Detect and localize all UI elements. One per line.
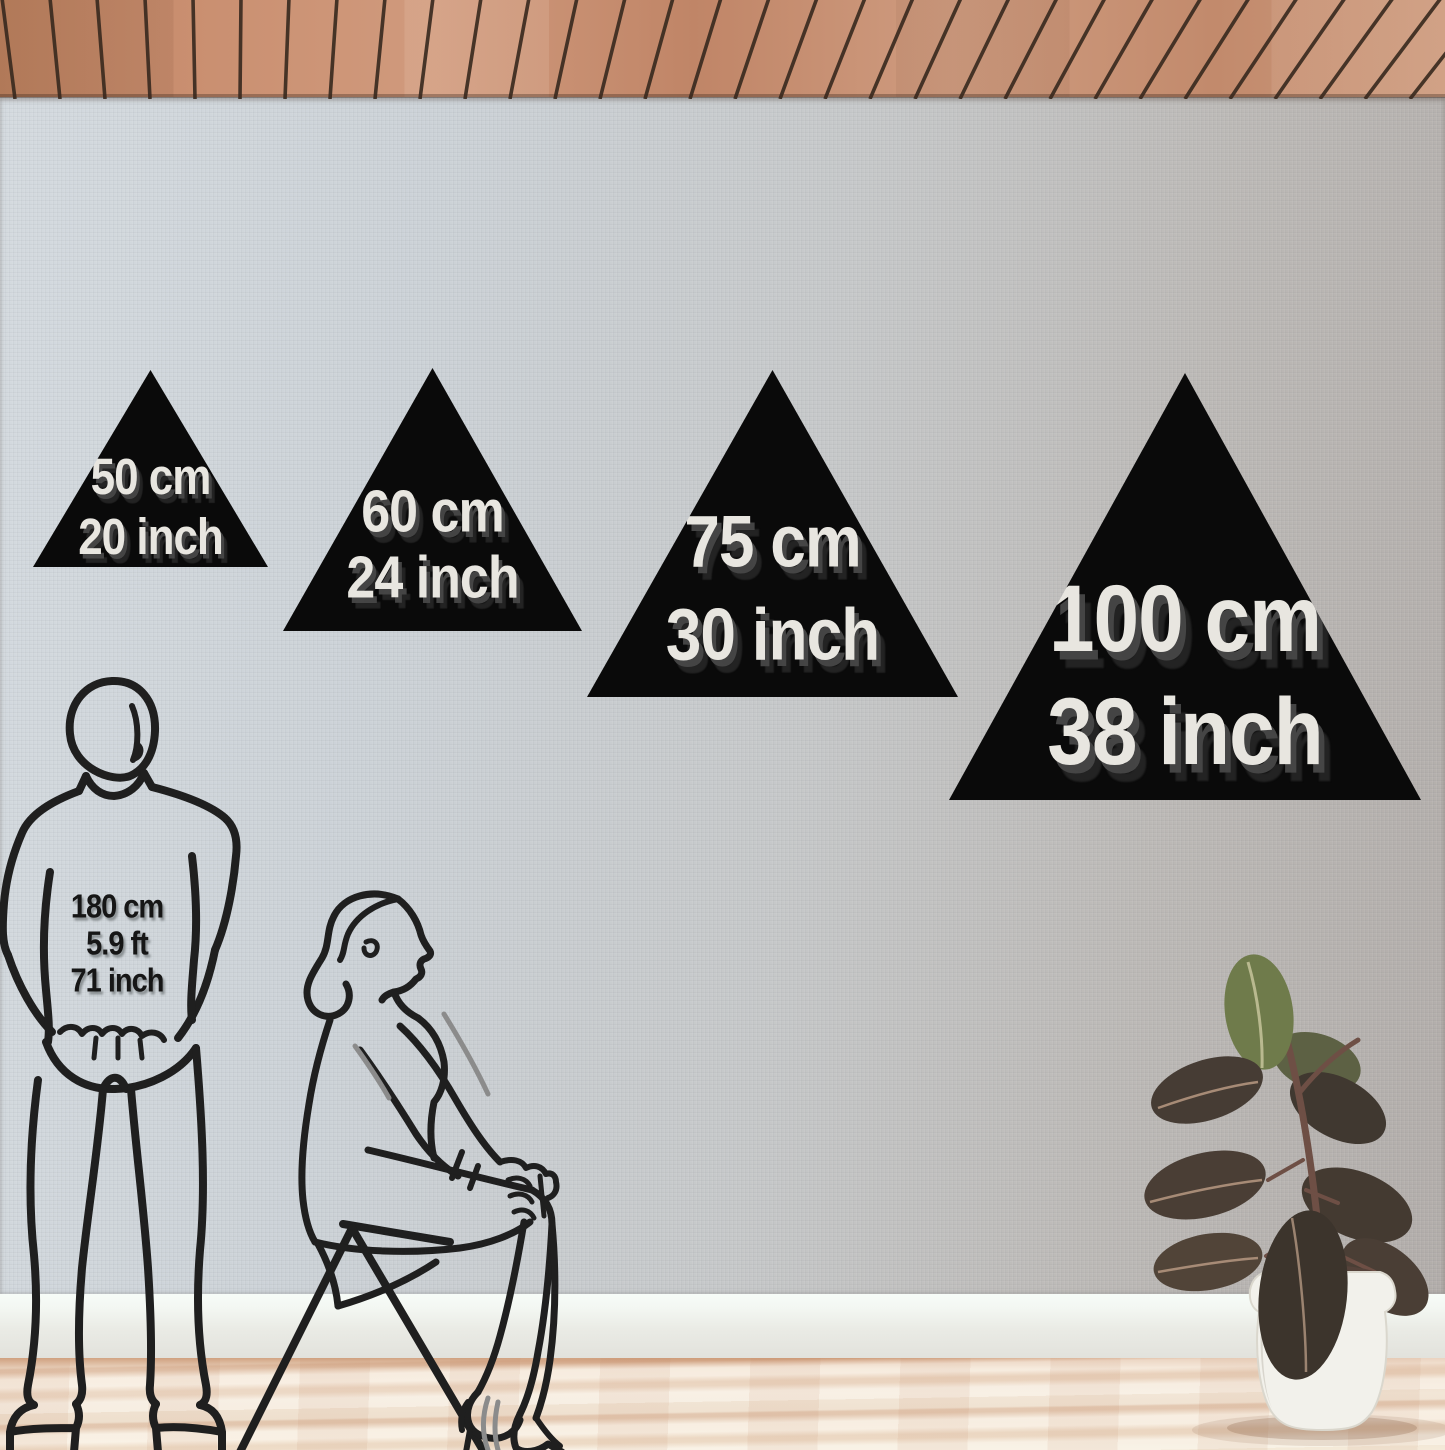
person-height-label: 180 cm 5.9 ft 71 inch	[27, 893, 207, 996]
person-height-ft: 5.9 ft	[27, 928, 207, 961]
standing-man-line-art	[3, 681, 237, 1450]
potted-rubber-plant	[1137, 950, 1445, 1446]
stool-line-art	[240, 1224, 484, 1450]
product-size-guide-scene: 50 cm 20 inch 60 cm 24 inch 75 cm 30 inc…	[0, 0, 1445, 1450]
scene-figures	[0, 0, 1445, 1450]
person-height-cm: 180 cm	[27, 891, 207, 924]
person-height-inch: 71 inch	[27, 965, 207, 998]
